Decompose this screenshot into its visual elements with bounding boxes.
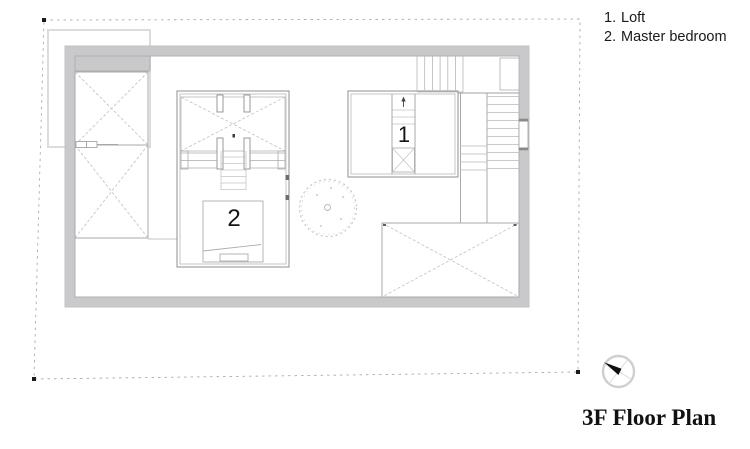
pillow [220, 254, 248, 261]
page-title: 3F Floor Plan [582, 405, 716, 431]
legend: 1. Loft 2. Master bedroom [604, 9, 727, 47]
legend-number: 2. [604, 28, 621, 47]
legend-number: 1. [604, 9, 621, 28]
floor-plan-page: 1. Loft 2. Master bedroom 1 2 3F Floor P… [0, 0, 750, 449]
legend-item-master-bedroom: 2. Master bedroom [604, 28, 727, 47]
north-arrow-icon [603, 356, 634, 387]
boundary-corner-dot [32, 377, 36, 381]
legend-label: Master bedroom [621, 28, 727, 47]
wall-opening-mark [286, 195, 290, 200]
boundary-corner-dot [42, 18, 46, 22]
stair-arrow-mark [233, 134, 236, 138]
legend-item-loft: 1. Loft [604, 9, 727, 28]
main-staircase [458, 58, 519, 223]
wall-chunk-top-left [75, 56, 150, 71]
room-number-master-bedroom: 2 [224, 205, 244, 233]
floor-plan-drawing [0, 0, 750, 449]
left-void-xbox [75, 72, 148, 238]
room-number-loft: 1 [395, 122, 413, 148]
boundary-corner-dot [576, 370, 580, 374]
tree-symbol [300, 180, 357, 237]
room-master-bedroom [177, 91, 289, 267]
legend-label: Loft [621, 9, 645, 28]
right-wall-window [519, 119, 528, 150]
bottom-void-xbox [382, 223, 519, 297]
wall-opening-mark [286, 175, 290, 180]
stair-landing [500, 58, 519, 90]
top-ladder [417, 56, 463, 92]
